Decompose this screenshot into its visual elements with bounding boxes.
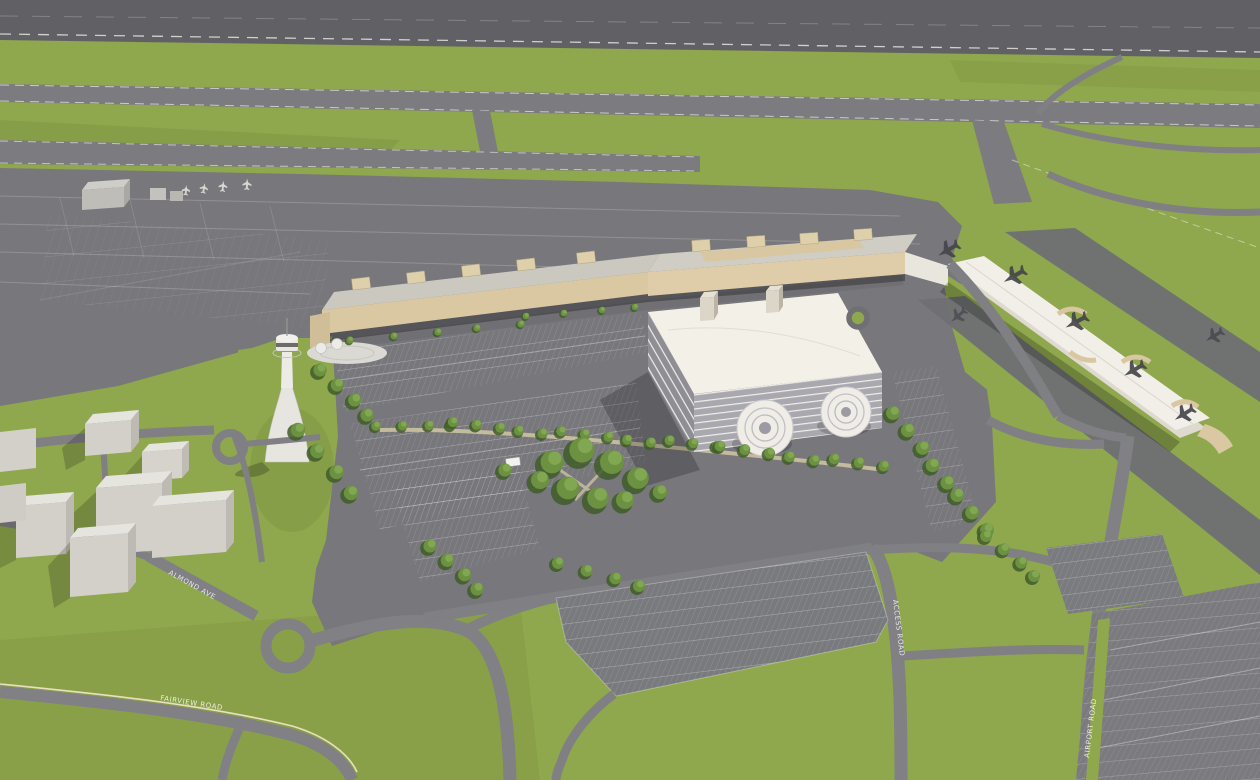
storage-tank bbox=[332, 339, 343, 350]
support-building bbox=[152, 490, 234, 558]
tower-cab-windows bbox=[276, 343, 298, 347]
rendering-canvas: ALMOND AVE FAIRVIEW ROAD ACCESS ROAD AIR… bbox=[0, 0, 1260, 780]
curbside-roundabout bbox=[849, 309, 867, 327]
airport-rendering: ALMOND AVE FAIRVIEW ROAD ACCESS ROAD AIR… bbox=[0, 0, 1260, 780]
storage-tank bbox=[316, 343, 327, 354]
